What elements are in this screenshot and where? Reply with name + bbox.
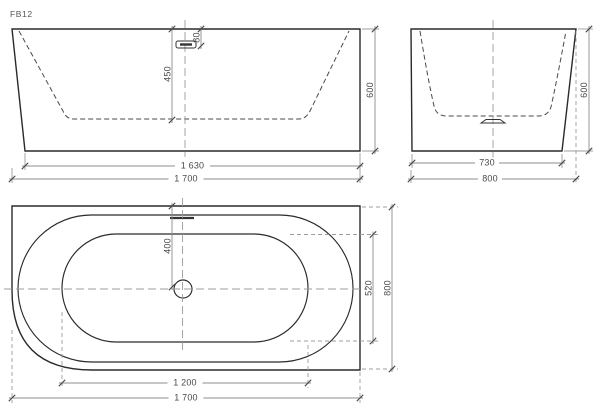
plan-rim-line <box>18 215 353 362</box>
drawing-sheet: FB12 450 80 600 1 630 1 700 <box>0 0 600 409</box>
front-dim-overflow-label: 80 <box>192 32 202 42</box>
plan-dim-800-label: 800 <box>383 280 393 296</box>
plan-dim-400-label: 400 <box>163 238 173 254</box>
front-tub-outline <box>12 29 360 151</box>
side-dim-600-label: 600 <box>579 82 589 98</box>
front-dim-1630-label: 1 630 <box>181 161 205 171</box>
plan-inner-bowl-line <box>62 234 308 342</box>
side-view: 730 800 600 <box>408 20 593 185</box>
plan-dim-1700-label: 1 700 <box>174 393 198 403</box>
side-tub-outline <box>411 29 576 151</box>
plan-dim-1200-label: 1 200 <box>173 378 197 388</box>
front-view: 450 80 600 1 630 1 700 <box>9 20 379 185</box>
drawing-code: FB12 <box>10 9 33 19</box>
plan-view: 400 520 800 1 200 1 700 <box>4 198 398 404</box>
plan-dim-520-label: 520 <box>364 280 374 296</box>
front-dim-height-label: 600 <box>365 82 375 98</box>
side-dim-800-label: 800 <box>482 174 498 184</box>
front-dim-depth-label: 450 <box>163 66 173 82</box>
side-dim-730-label: 730 <box>479 158 495 168</box>
front-dim-1700-label: 1 700 <box>174 174 198 184</box>
